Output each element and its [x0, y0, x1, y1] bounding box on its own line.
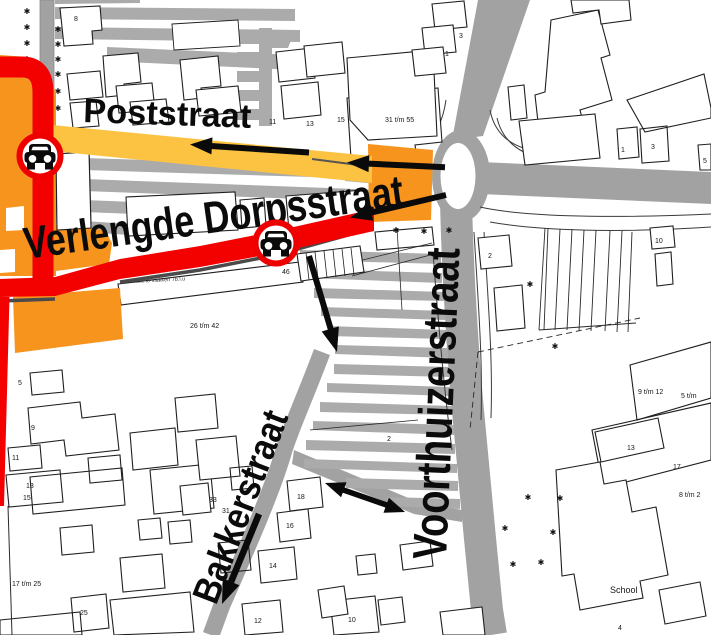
svg-text:18: 18 — [297, 494, 305, 501]
svg-text:13: 13 — [26, 483, 34, 490]
svg-text:✱: ✱ — [557, 494, 564, 503]
svg-text:✱: ✱ — [393, 226, 400, 235]
svg-text:2: 2 — [387, 436, 391, 443]
svg-text:✱: ✱ — [510, 560, 517, 569]
svg-text:12: 12 — [254, 618, 262, 625]
svg-text:✱: ✱ — [502, 524, 509, 533]
svg-text:4: 4 — [618, 625, 622, 632]
svg-text:✱: ✱ — [24, 7, 31, 16]
svg-text:46: 46 — [282, 269, 290, 276]
svg-text:11: 11 — [269, 119, 276, 126]
svg-text:✱: ✱ — [525, 493, 532, 502]
svg-text:✱: ✱ — [55, 25, 62, 34]
svg-text:11: 11 — [12, 455, 19, 462]
svg-text:5: 5 — [18, 380, 22, 387]
svg-text:Poststraat: Poststraat — [83, 92, 252, 136]
svg-text:8: 8 — [74, 16, 78, 23]
svg-text:17: 17 — [673, 464, 681, 471]
svg-text:✱: ✱ — [552, 342, 559, 351]
svg-text:13: 13 — [627, 445, 635, 452]
svg-text:9: 9 — [31, 425, 35, 432]
svg-text:9 t/m 12: 9 t/m 12 — [638, 389, 663, 396]
svg-text:31 t/m 55: 31 t/m 55 — [385, 117, 414, 124]
svg-text:5 t/m: 5 t/m — [681, 393, 697, 400]
svg-text:✱: ✱ — [538, 558, 545, 567]
svg-text:3: 3 — [459, 33, 463, 40]
svg-text:26 t/m 42: 26 t/m 42 — [190, 323, 219, 330]
svg-text:8 t/m 2: 8 t/m 2 — [679, 492, 701, 499]
svg-text:✱: ✱ — [55, 40, 62, 49]
svg-text:✱: ✱ — [421, 227, 428, 236]
svg-text:School: School — [610, 585, 638, 595]
svg-text:17 t/m 25: 17 t/m 25 — [12, 581, 41, 588]
svg-text:5: 5 — [703, 158, 707, 165]
svg-text:✱: ✱ — [24, 23, 31, 32]
svg-text:✱: ✱ — [55, 70, 62, 79]
svg-text:10: 10 — [655, 238, 663, 245]
svg-text:33: 33 — [209, 497, 217, 504]
svg-text:✱: ✱ — [55, 55, 62, 64]
svg-text:1: 1 — [445, 51, 449, 58]
svg-text:13: 13 — [306, 121, 314, 128]
svg-text:✱: ✱ — [527, 280, 534, 289]
svg-text:2: 2 — [488, 253, 492, 260]
svg-text:15: 15 — [23, 495, 31, 502]
svg-text:3: 3 — [651, 144, 655, 151]
svg-text:✱: ✱ — [24, 39, 31, 48]
svg-text:✱: ✱ — [550, 528, 557, 537]
svg-text:25: 25 — [80, 610, 88, 617]
svg-text:✱: ✱ — [446, 226, 453, 235]
svg-text:14: 14 — [269, 563, 277, 570]
svg-text:16: 16 — [286, 523, 294, 530]
svg-text:1: 1 — [621, 147, 625, 154]
svg-text:10: 10 — [348, 617, 356, 624]
svg-text:15: 15 — [337, 117, 345, 124]
